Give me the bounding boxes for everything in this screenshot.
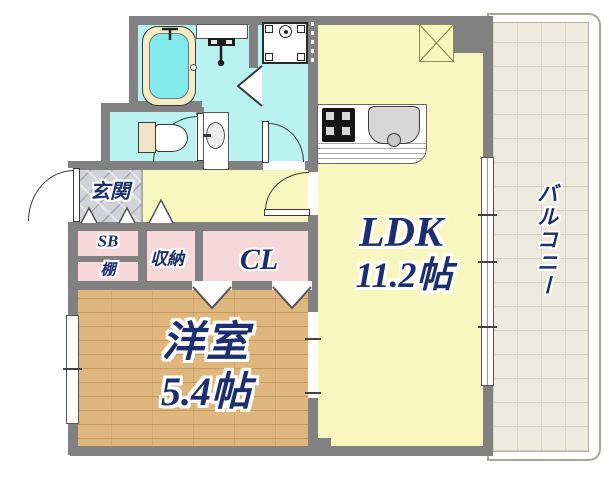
pan-corner <box>297 53 305 61</box>
wall-storage-cl-divider <box>195 226 203 287</box>
pan-faucet-dot <box>284 30 288 34</box>
genkan-step-edge <box>141 163 143 226</box>
kitchen-counter-front <box>318 143 426 163</box>
ldk-window-tick-1 <box>478 214 497 216</box>
western-window-tick <box>63 368 82 370</box>
shoebox-door-icon <box>79 206 99 225</box>
cl-door-icon <box>191 286 233 310</box>
ldk-door-leaf <box>264 209 310 216</box>
washbasin-faucet-icon <box>203 134 211 137</box>
ldk-label: LDK <box>359 212 443 254</box>
storage-door-icon <box>147 198 175 225</box>
ldk-window-tick-3 <box>478 326 497 328</box>
wall-dashed-mark <box>311 22 314 66</box>
bath-folding-door-icon <box>234 64 264 108</box>
toilet-bowl <box>155 124 188 152</box>
ldk-size-label: 11.2帖 <box>355 257 452 293</box>
shelf-label: 棚 <box>100 264 115 279</box>
storage-label: 収納 <box>150 251 184 268</box>
bathtub-overflow-dot <box>190 64 197 71</box>
wall-bath-divider <box>249 16 258 68</box>
wall-ldk-topright-chunk <box>453 16 492 53</box>
bathtub-faucet-icon <box>160 25 180 43</box>
wall-basin-washroom <box>228 161 265 170</box>
sliding-door-tick-top <box>305 338 321 340</box>
entrance-door-arc <box>28 170 74 221</box>
washroom-door-opening <box>263 161 305 170</box>
wall-sb-right <box>138 222 147 287</box>
closet-label: CL <box>240 245 278 275</box>
wall-bottom <box>70 446 492 456</box>
pan-corner <box>265 53 273 61</box>
genkan-label: 玄関 <box>90 182 130 202</box>
shoebox-label: SB <box>98 233 119 250</box>
stove-burner <box>342 112 350 120</box>
stove-burner <box>326 127 334 135</box>
shoebox-door-icon <box>117 206 137 225</box>
balcony-label: バルコニー <box>536 183 557 298</box>
ldk-window-centerline <box>487 158 488 385</box>
ldk-window-tick-2 <box>478 261 497 263</box>
wall-bath-left <box>129 16 138 112</box>
wall-sb-shelf-divider <box>78 256 138 262</box>
floorplan: 玄関 SB 棚 収納 CL 洋室 5.4帖 LDK 11.2帖 バルコニー <box>0 0 604 480</box>
sliding-door-tick-bottom <box>305 392 321 394</box>
cl-door-icon <box>271 286 313 310</box>
toilet-tank <box>138 122 156 153</box>
sink-drain <box>387 133 401 147</box>
wall-genkan-top <box>70 161 204 170</box>
wall-hall-bottom <box>70 222 318 231</box>
stove-burner <box>342 127 350 135</box>
pan-corner <box>265 25 273 33</box>
sliding-door-opening <box>308 312 318 398</box>
pipe-space-box <box>419 24 454 62</box>
wall-toilet-left <box>101 103 110 170</box>
wall-ldk-column <box>318 438 331 448</box>
pan-corner <box>297 25 305 33</box>
shower-mixer-icon <box>205 36 239 68</box>
stove-burner <box>326 112 334 120</box>
western-room-size-label: 5.4帖 <box>161 372 251 412</box>
western-room-label: 洋室 <box>162 322 250 364</box>
